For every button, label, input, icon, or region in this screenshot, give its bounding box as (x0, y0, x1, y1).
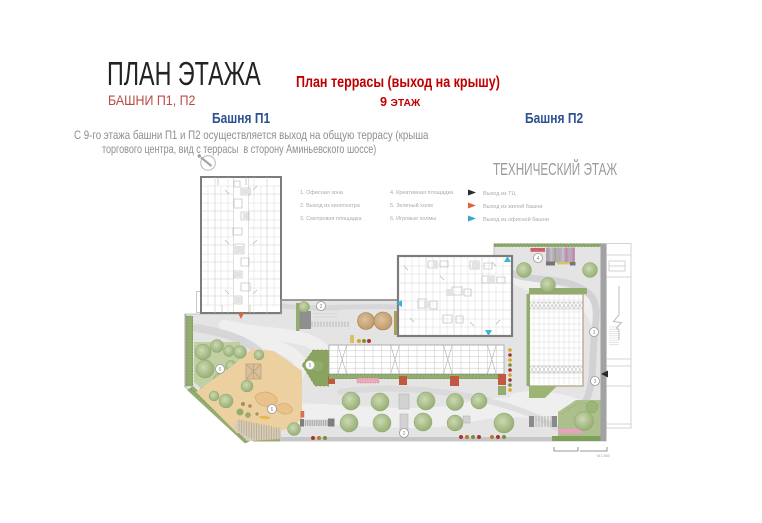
svg-text:2. Выход из кинотеатра: 2. Выход из кинотеатра (300, 203, 361, 209)
svg-text:4. Креативная площадка: 4. Креативная площадка (390, 190, 454, 196)
svg-text:Выход из жилой башни: Выход из жилой башни (483, 203, 542, 210)
svg-text:3: 3 (593, 330, 596, 336)
svg-text:2: 2 (403, 431, 406, 437)
svg-text:5. Зеленый холм: 5. Зеленый холм (390, 202, 433, 209)
svg-text:Выход из офисной башни: Выход из офисной башни (483, 216, 549, 223)
svg-text:3: 3 (594, 379, 597, 385)
svg-text:5: 5 (309, 363, 312, 369)
svg-text:1. Офисная зона: 1. Офисная зона (300, 190, 344, 196)
svg-text:6: 6 (271, 407, 274, 413)
svg-text:М 1:500: М 1:500 (597, 454, 610, 458)
svg-text:6. Игровые холмы: 6. Игровые холмы (390, 216, 436, 222)
svg-text:Выход из ТЦ: Выход из ТЦ (483, 191, 516, 197)
svg-text:6: 6 (219, 367, 222, 373)
svg-text:4: 4 (537, 256, 540, 262)
svg-text:2: 2 (320, 304, 323, 310)
svg-text:3. Смотровая площадка: 3. Смотровая площадка (300, 216, 362, 222)
